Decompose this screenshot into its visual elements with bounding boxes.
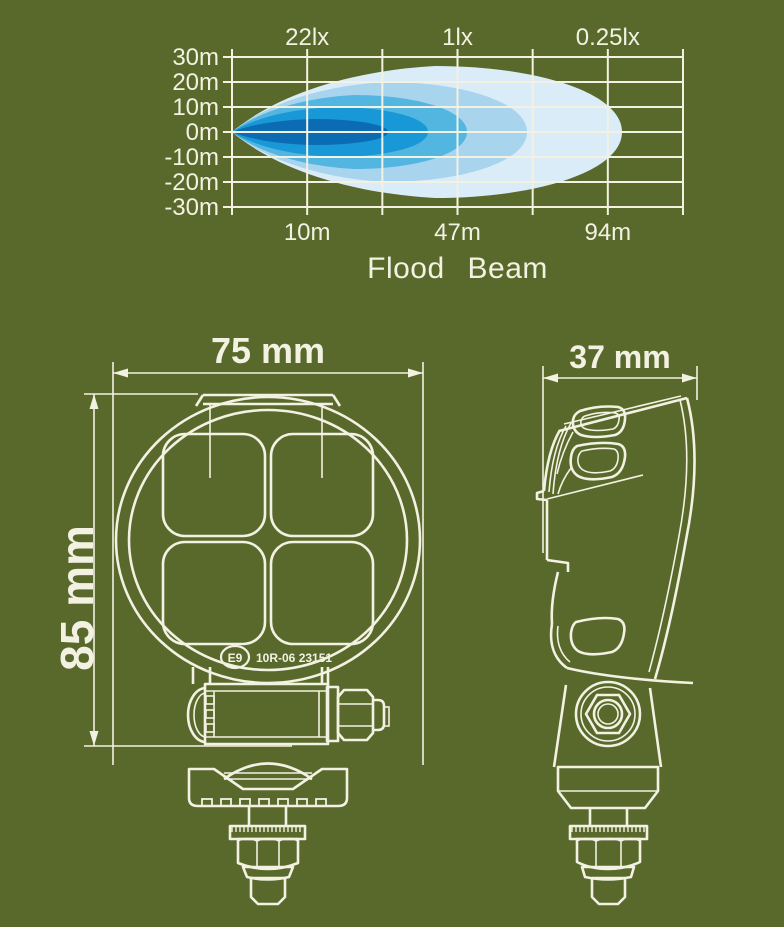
threaded-stud (592, 878, 625, 904)
threaded-stud (251, 878, 285, 904)
led-panel (271, 542, 373, 644)
side-mount-base (558, 767, 658, 904)
approval-number: 10R-06 23151 (256, 651, 332, 665)
technical-drawing: 75 mm 85 mm (0, 0, 784, 927)
heat-sink-fins (557, 407, 625, 655)
front-mounting-bolt (230, 806, 305, 904)
front-mount-base (189, 764, 347, 807)
left-end-cap (188, 688, 206, 742)
led-panels (163, 434, 373, 644)
lamp-bezel (116, 397, 420, 683)
front-width-label: 75 mm (211, 330, 325, 371)
led-panel (163, 542, 265, 644)
front-view: 75 mm 85 mm (51, 330, 423, 904)
front-height-label: 85 mm (51, 525, 103, 671)
side-view: 37 mm (537, 339, 697, 904)
adjustment-knob (327, 687, 389, 741)
lens-front-edge (655, 398, 694, 679)
side-bracket (554, 682, 661, 767)
side-depth-label: 37 mm (569, 339, 670, 375)
e-mark: E9 10R-06 23151 (221, 646, 332, 668)
spec-sheet: 22lx1lx0.25lx10m47m94m30m20m10m0m-10m-20… (0, 0, 784, 927)
top-mounting-tab (196, 395, 340, 478)
led-panel (163, 434, 265, 536)
hex-nut (577, 839, 640, 869)
e-mark-code: E9 (228, 651, 243, 665)
hex-nut (238, 839, 298, 869)
side-housing (537, 396, 694, 683)
